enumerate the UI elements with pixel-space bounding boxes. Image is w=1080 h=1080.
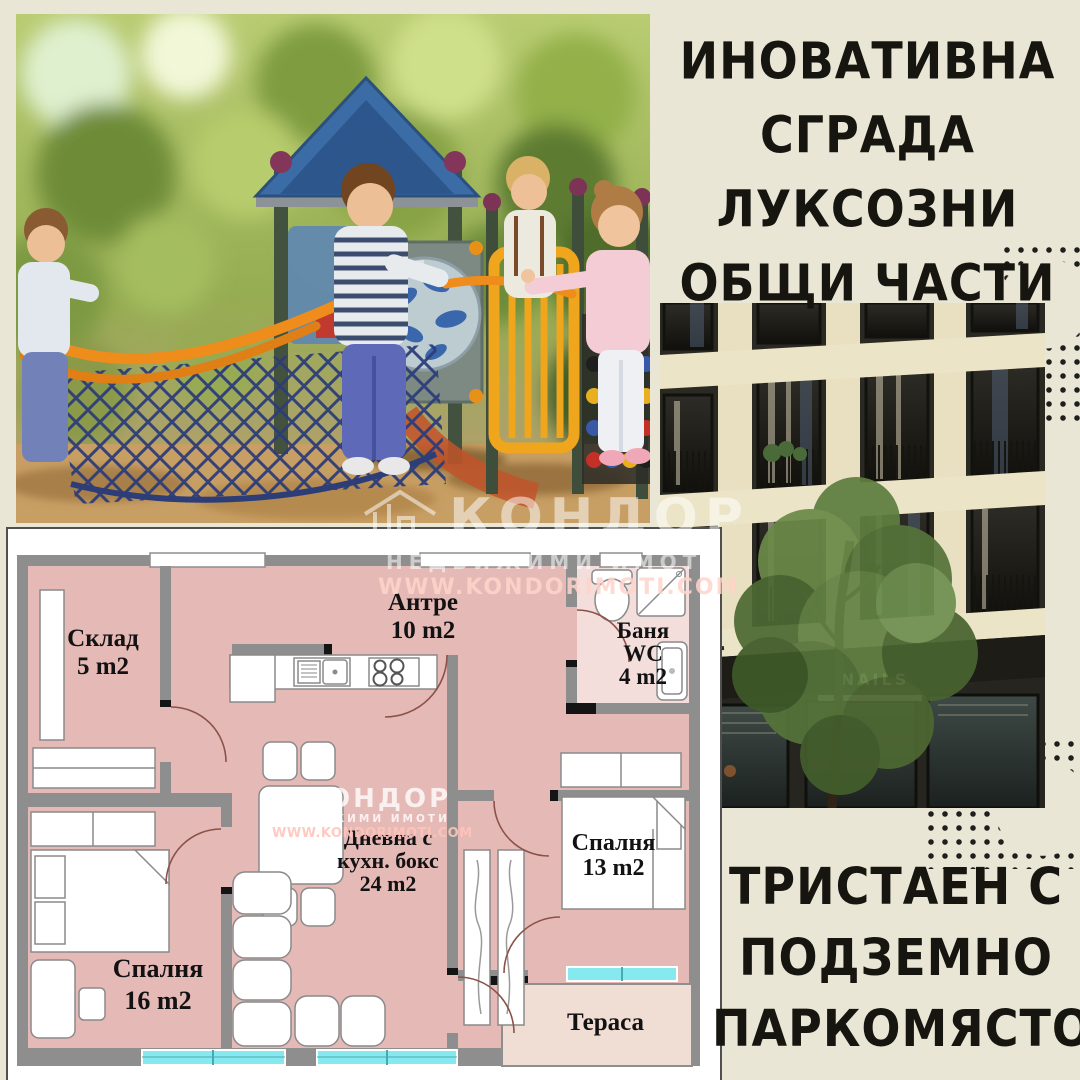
room-label-bedroom-16: Спалня 16 m2	[83, 953, 233, 1017]
flyer-canvas: NAILS ИНОВАТИВНА СГРАДА ЛУКСОЗНИ ОБЩИ ЧА…	[0, 0, 1080, 1080]
headline-top-line: СГРАДА	[655, 94, 1080, 175]
headline-bottom-line: ПОДЗЕМНО	[712, 919, 1080, 997]
house-logo-icon	[273, 787, 299, 811]
room-label-bedroom-13: Спалня 13 m2	[536, 831, 691, 881]
headline-bottom: ТРИСТАЕН С ПОДЗЕМНО ПАРКОМЯСТО	[712, 848, 1080, 1061]
watermark-url: WWW.KONDORIMOTI.COM	[272, 826, 452, 841]
headline-top-line: ЛУКСОЗНИ	[655, 168, 1080, 249]
headline-top-line: ОБЩИ ЧАСТИ	[655, 242, 1080, 323]
playground-illustration	[16, 14, 650, 523]
house-logo-icon	[361, 488, 439, 548]
agency-watermark-small: КОНДОР НЕДВИЖИМИ ИМОТИ WWW.KONDORIMOTI.C…	[272, 785, 452, 841]
watermark-brand: КОНДОР	[449, 490, 750, 546]
headline-top: ИНОВАТИВНА СГРАДА ЛУКСОЗНИ ОБЩИ ЧАСТИ	[655, 20, 1080, 316]
room-label-storage: Склад 5 m2	[33, 625, 173, 681]
agency-watermark-large: КОНДОР НЕДВИЖИМИ ИМОТИ WWW.KONDORIMOTI.C…	[378, 488, 733, 600]
watermark-tagline: НЕДВИЖИМИ ИМОТИ	[378, 550, 733, 574]
watermark-url: WWW.KONDORIMOTI.COM	[378, 575, 733, 600]
playground-photo	[16, 14, 650, 523]
headline-bottom-line: ПАРКОМЯСТО	[712, 990, 1080, 1068]
room-label-bathroom: Баня WC 4 m2	[588, 619, 698, 688]
room-label-terrace: Тераса	[528, 1009, 683, 1037]
watermark-brand: КОНДОР	[304, 785, 451, 813]
watermark-tagline: НЕДВИЖИМИ ИМОТИ	[272, 813, 452, 825]
headline-top-line: ИНОВАТИВНА	[655, 20, 1080, 101]
headline-bottom-line: ТРИСТАЕН С	[712, 848, 1080, 926]
